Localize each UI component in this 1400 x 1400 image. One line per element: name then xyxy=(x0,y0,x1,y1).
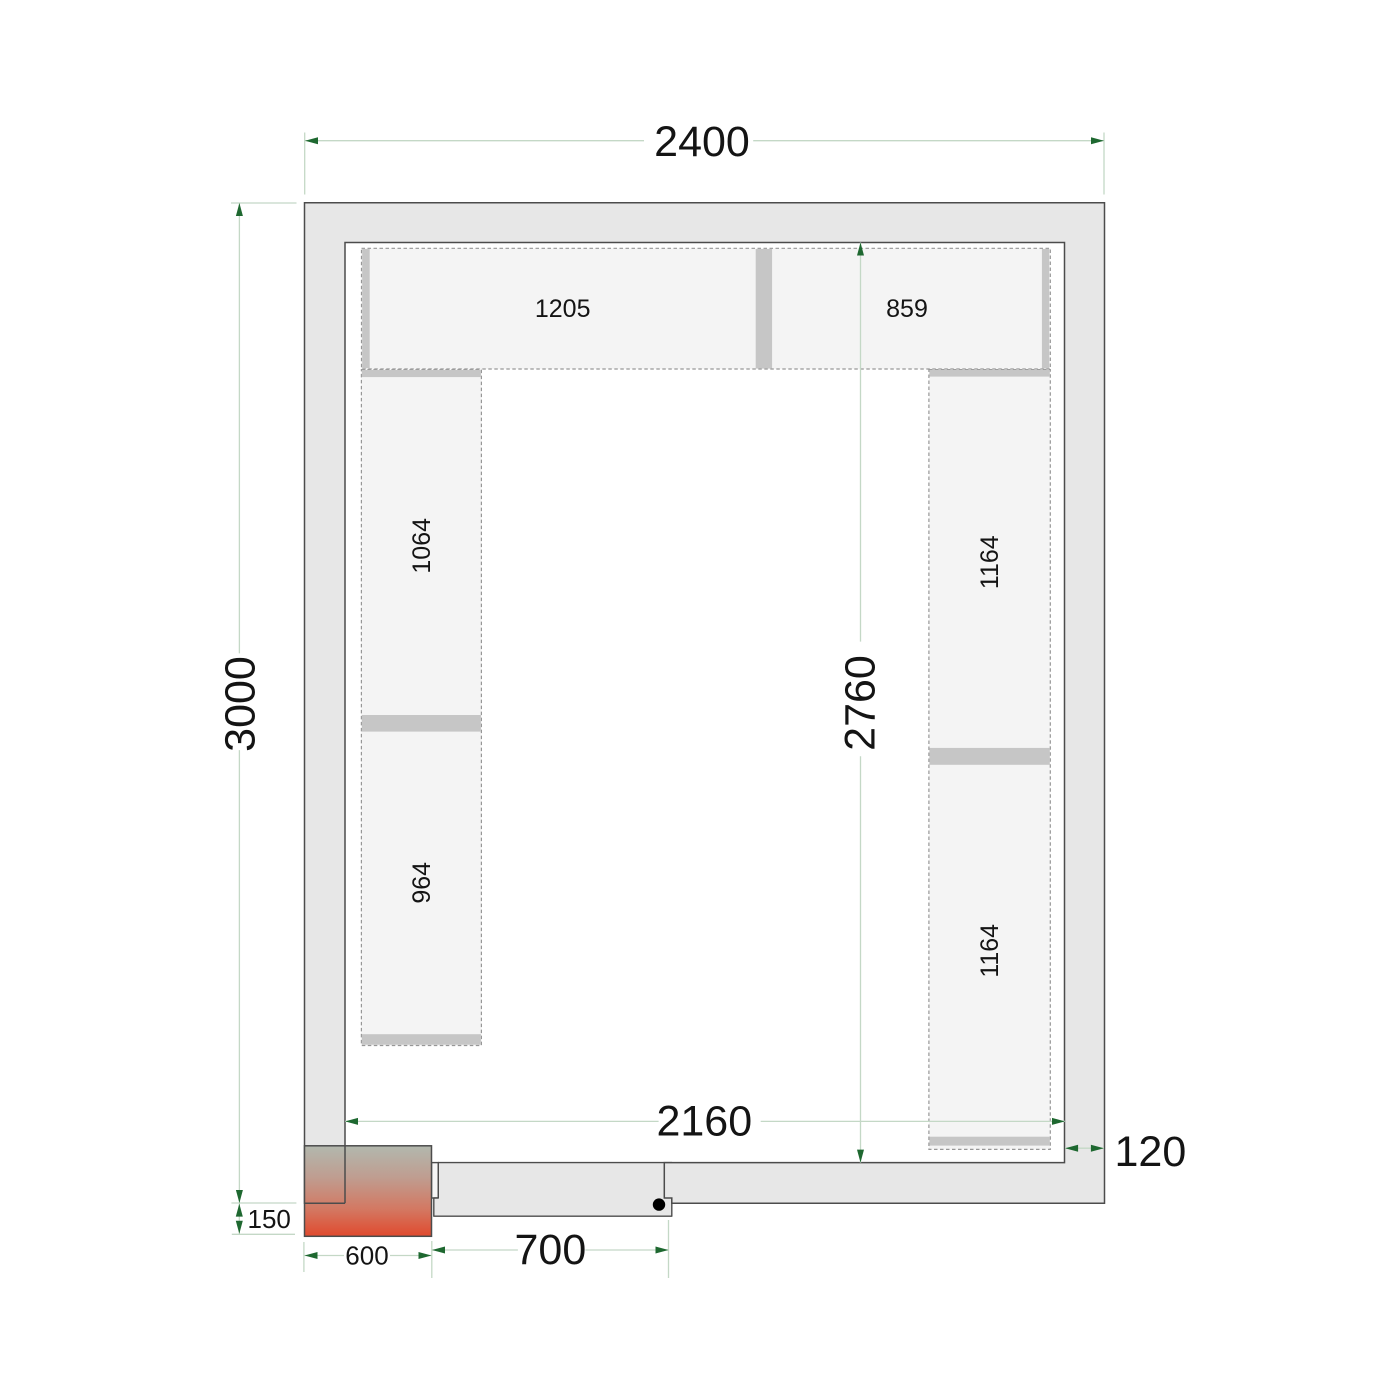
svg-text:964: 964 xyxy=(408,862,436,904)
svg-text:700: 700 xyxy=(515,1226,587,1274)
svg-text:1164: 1164 xyxy=(976,535,1004,589)
svg-text:150: 150 xyxy=(248,1204,291,1234)
svg-text:2760: 2760 xyxy=(836,655,884,751)
svg-text:2160: 2160 xyxy=(656,1097,752,1145)
svg-text:1164: 1164 xyxy=(976,924,1004,978)
svg-text:120: 120 xyxy=(1115,1128,1187,1176)
svg-text:859: 859 xyxy=(886,295,928,323)
svg-text:600: 600 xyxy=(345,1240,388,1270)
svg-text:1205: 1205 xyxy=(535,295,591,323)
svg-text:1064: 1064 xyxy=(408,518,436,574)
svg-text:2400: 2400 xyxy=(654,118,750,166)
svg-text:3000: 3000 xyxy=(217,656,265,752)
